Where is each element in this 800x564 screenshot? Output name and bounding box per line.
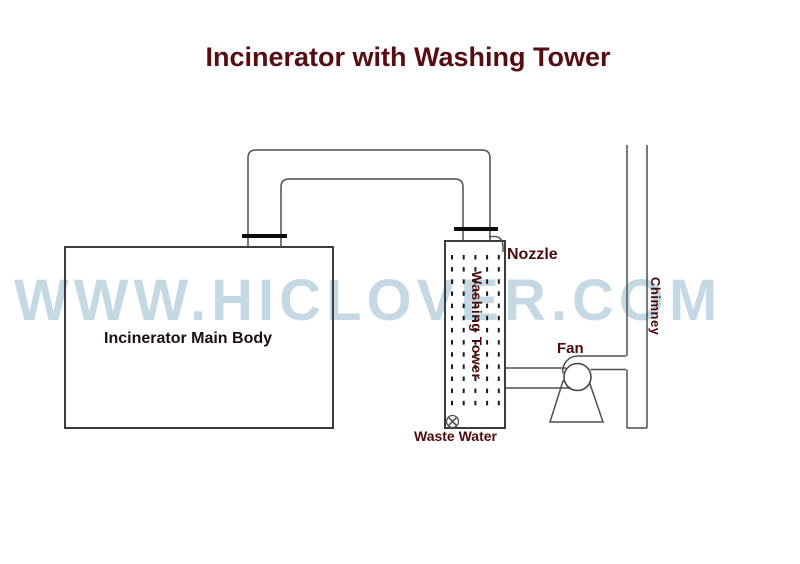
label-nozzle: Nozzle (507, 246, 558, 264)
tower-to-fan-duct (505, 368, 570, 388)
flue-pipe (242, 150, 498, 247)
label-chimney: Chimney (648, 277, 662, 335)
label-incinerator-main-body: Incinerator Main Body (104, 330, 272, 348)
diagram-title: Incinerator with Washing Tower (205, 42, 610, 73)
label-fan: Fan (557, 341, 584, 358)
fan-shape (550, 356, 603, 422)
incinerator-diagram (0, 0, 800, 564)
nozzle-pipe (489, 236, 503, 252)
fan-wheel (564, 364, 591, 391)
chimney-shape (627, 145, 647, 428)
label-waste-water: Waste Water (414, 429, 497, 444)
label-washing-tower: Washing Tower (469, 271, 484, 379)
drain-icon (447, 416, 459, 428)
